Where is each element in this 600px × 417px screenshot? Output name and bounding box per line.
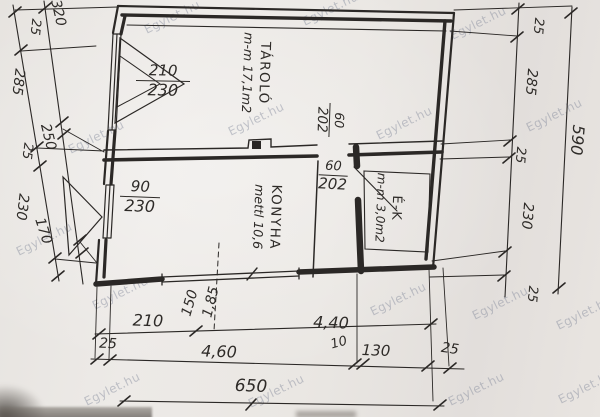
dim-bottom-row2-2: 10: [329, 335, 348, 352]
window2-height: 230: [119, 197, 160, 215]
window1-width: 210: [136, 63, 190, 82]
room-detail-konyha: mettl 10,6: [250, 184, 268, 250]
floorplan-scan: Egylet.hu Egylet.hu Egylet.hu Egylet.hu …: [0, 0, 600, 417]
door1-height: 202: [314, 102, 330, 136]
room-label-tarolo: TÁROLÓ m-m 17,1m2: [238, 32, 273, 114]
scan-smudge-band: [0, 407, 152, 417]
flue-block: [252, 141, 261, 149]
room-name-tarolo: TÁROLÓ: [254, 33, 274, 114]
door1-size-label: 60 202: [314, 102, 345, 137]
dim-bottom-row2-3: 130: [361, 343, 390, 359]
window1-height: 230: [136, 81, 190, 99]
scan-smudge-mark: [296, 411, 356, 417]
dim-bottom-total: 650: [234, 378, 267, 396]
room-name-ek: É-K: [386, 173, 405, 243]
dim-bottom-row2-0: 25: [99, 337, 117, 352]
dim-bottom-row1-0: 210: [132, 312, 163, 329]
window2-size-label: 90 230: [119, 179, 160, 215]
room-detail-ek: m-m 3,0m2: [371, 173, 388, 243]
dim-left-outer-1: 285: [9, 68, 26, 96]
dim-right-2: 25: [513, 146, 527, 164]
room-name-konyha: KONYHA: [265, 184, 284, 250]
dim-bottom-row2-4: 25: [440, 341, 460, 357]
door2-height: 202: [318, 175, 347, 192]
dim-bottom-row2-1: 4,60: [201, 343, 237, 360]
dim-right-total: 590: [568, 124, 587, 156]
dim-right-3: 230: [519, 202, 535, 230]
dim-right-1: 285: [523, 68, 539, 96]
dim-right-4: 25: [525, 285, 539, 303]
dim-right-0: 25: [531, 17, 545, 35]
extension-lines: [95, 268, 449, 401]
window-symbol-bottom: [162, 268, 299, 285]
window1-size-label: 210 230: [136, 63, 191, 99]
room-label-konyha: KONYHA mettl 10,6: [250, 184, 285, 251]
room-detail-tarolo: m-m 17,1m2: [238, 32, 256, 113]
dim-left-outer-2: 25: [20, 142, 35, 160]
door1-width: 60: [329, 103, 346, 138]
door-leaf-line: [313, 161, 318, 277]
dim-left-outer-3: 230: [13, 193, 30, 221]
room-label-ek: É-K m-m 3,0m2: [371, 173, 405, 244]
dim-bottom-row1-1: 4,40: [313, 314, 349, 331]
plan-linework: [0, 0, 600, 417]
door2-size-label: 60 202: [318, 159, 348, 192]
dim-left-outer-0: 25: [28, 18, 43, 36]
